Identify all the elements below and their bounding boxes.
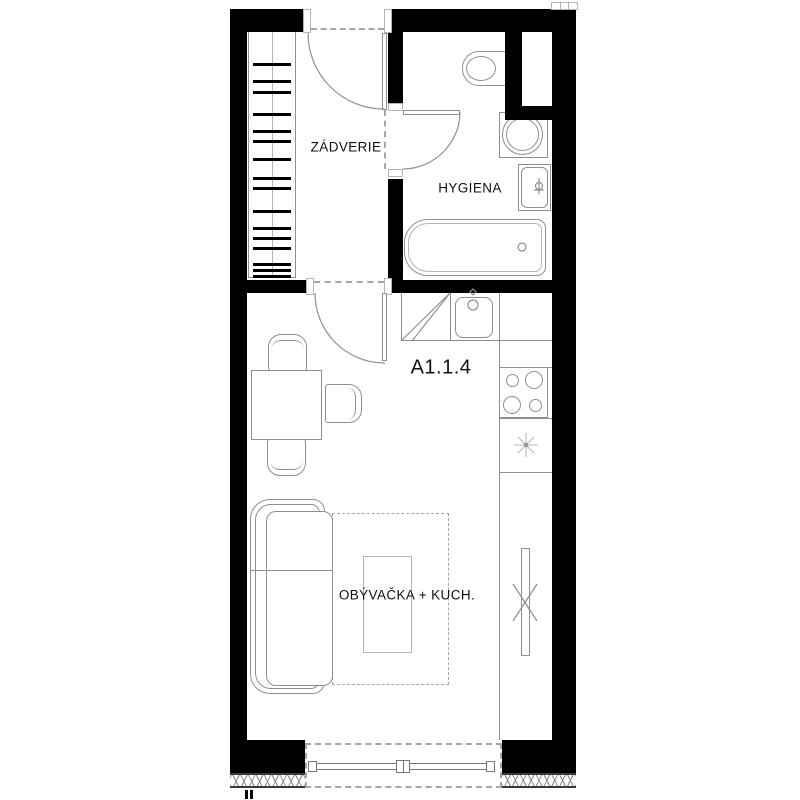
living-door-swing [315,293,385,363]
dining-table [251,370,322,440]
door-jamb [388,169,403,177]
hanger-bar [253,130,291,133]
hanger-bar [253,269,291,272]
hanger-bar [253,275,291,278]
wall-top-left [230,9,305,32]
hanger-bar [253,187,291,190]
washing-machine-drum-inner [506,118,539,151]
bathroom-door-swing [403,112,460,169]
kitchen-zone-line [499,293,500,740]
chair-back-line [346,387,356,420]
chair [267,439,306,476]
living-opening-line [314,281,384,283]
hanger-bar [253,91,291,94]
sofa-cushion-line [251,570,333,571]
hanger-bar [253,177,291,180]
radiator [521,548,530,656]
bathroom-door-leaf [403,110,460,115]
door-jamb [303,9,311,33]
window-frame-end [308,761,317,772]
entrance-door-swing [308,33,384,109]
sofa-seat [266,511,333,686]
kitchen-sink [455,297,493,338]
hanger-bar [253,158,291,161]
hanger-bar [253,237,291,240]
window-frame-center-line [403,761,404,772]
chair [268,334,307,371]
washbasin-bowl [521,167,548,208]
hanger-bar [253,247,291,250]
hanger-bar [253,80,291,83]
top-marker-line [560,3,561,9]
door-jamb [306,278,314,295]
shaft-wall-bottom [505,106,576,120]
counter-divider [450,293,451,341]
top-marker-line [568,3,569,9]
hanger-bar [253,263,291,266]
bathtub-rim [408,223,542,272]
top-marker [551,2,578,10]
wall-left [230,32,247,740]
counter-line [499,472,552,473]
cooktop-burner [529,399,542,412]
insulation-hatch [502,773,576,788]
hanger-bar [253,63,291,66]
counter-line [499,418,552,419]
toilet-bowl [466,56,496,81]
door-jamb [384,9,392,33]
hanger-bar [253,140,291,143]
room-label-obyvacka: OBÝVAČKA + KUCH. [339,588,475,603]
window-frame-end [486,761,495,772]
hanger-bar [253,227,291,230]
cooktop-burner [503,396,521,414]
partition-hall-right [392,280,552,293]
cooktop-burner [506,374,519,387]
chair-back-line [271,340,304,350]
chair-back-line [270,460,303,470]
partition-bath-bottom [388,179,403,280]
bathroom-opening-line [384,110,386,169]
hanger-bar [253,113,291,116]
door-jamb [388,103,403,111]
wardrobe-hangers [249,32,295,277]
section-mark [245,790,248,799]
window-frame-center [396,760,410,773]
hanger-bar [253,210,291,213]
living-door-leaf [382,293,387,361]
unit-label: A1.1.4 [411,357,472,380]
floor-plan: ZÁDVERIE HYGIENA A1.1.4 OBÝVAČKA + KUCH. [0,0,800,800]
wall-top-right [390,9,576,32]
section-mark [250,790,253,799]
wall-bottom-left [230,740,305,773]
partition-bath-top [388,32,403,105]
insulation-hatch [230,773,305,788]
entrance-door-leaf [382,33,387,110]
coffee-table [363,556,412,653]
room-label-zadverie: ZÁDVERIE [311,140,382,155]
cooktop-burner [525,371,543,389]
entrance-opening-line [311,28,384,30]
wall-right [552,32,576,740]
partition-hall-left [247,280,306,293]
chair [325,384,362,423]
boiler-symbol [514,433,538,457]
room-label-hygiena: HYGIENA [438,181,502,196]
wardrobe [248,31,296,278]
wall-bottom-right [502,740,576,773]
